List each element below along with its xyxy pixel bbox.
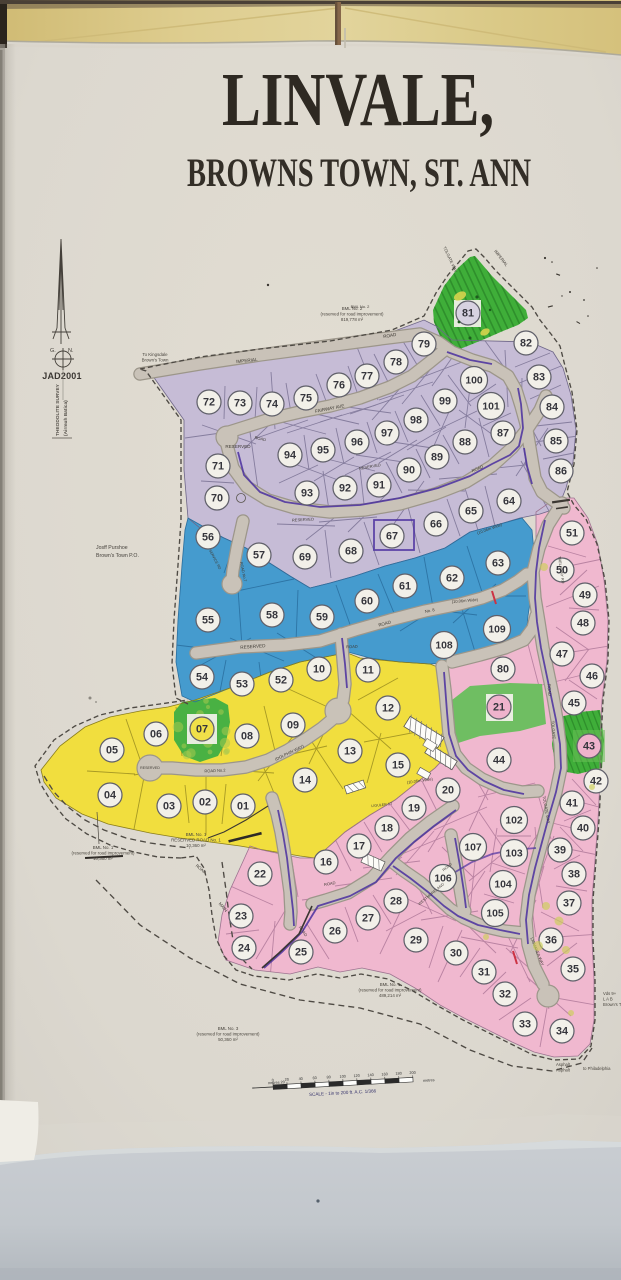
svg-text:11: 11 (362, 665, 373, 677)
svg-text:08: 08 (241, 731, 253, 743)
svg-text:100: 100 (339, 1075, 346, 1079)
svg-text:RESERVED ROAD No. 1: RESERVED ROAD No. 1 (171, 838, 221, 843)
svg-text:17: 17 (353, 841, 365, 853)
svg-text:20: 20 (442, 785, 454, 797)
svg-text:BML No. 1: BML No. 1 (93, 845, 114, 850)
svg-text:83: 83 (533, 372, 545, 384)
svg-text:49: 49 (579, 590, 591, 602)
svg-text:12: 12 (382, 703, 394, 715)
svg-text:Brown's T.: Brown's T. (603, 1002, 621, 1007)
svg-text:21: 21 (493, 702, 505, 714)
svg-text:67: 67 (386, 531, 398, 543)
svg-text:BML No. 3: BML No. 3 (218, 1026, 239, 1031)
svg-text:74: 74 (266, 399, 278, 411)
svg-text:82: 82 (520, 338, 532, 350)
svg-text:06: 06 (150, 729, 162, 741)
svg-text:THEODOLITE SURVEY: THEODOLITE SURVEY (55, 383, 61, 436)
svg-text:44: 44 (493, 755, 505, 767)
svg-text:102: 102 (505, 816, 523, 827)
svg-text:90: 90 (403, 465, 415, 477)
svg-text:48: 48 (577, 618, 589, 630)
svg-text:489,214 m²: 489,214 m² (379, 993, 402, 998)
svg-text:38: 38 (568, 869, 580, 881)
svg-text:97: 97 (381, 428, 393, 440)
svg-text:65: 65 (465, 506, 477, 518)
svg-text:13: 13 (344, 746, 356, 758)
svg-text:To Kingsdale: To Kingsdale (142, 352, 168, 357)
svg-text:77: 77 (361, 371, 373, 383)
svg-text:72: 72 (203, 397, 215, 409)
svg-text:84: 84 (546, 402, 558, 414)
svg-text:metres: metres (423, 1078, 435, 1083)
svg-text:96: 96 (351, 437, 363, 449)
svg-text:50,360 m²: 50,360 m² (218, 1037, 238, 1042)
svg-text:86: 86 (555, 466, 567, 478)
svg-text:30: 30 (450, 948, 462, 960)
svg-text:87: 87 (497, 428, 509, 440)
svg-text:60: 60 (361, 596, 373, 608)
svg-text:16: 16 (320, 857, 332, 869)
svg-text:160: 160 (381, 1072, 388, 1076)
svg-text:10,360 m²: 10,360 m² (186, 843, 206, 848)
svg-text:63: 63 (492, 558, 504, 570)
svg-text:33: 33 (519, 1019, 531, 1031)
svg-text:105: 105 (486, 909, 504, 920)
svg-text:26: 26 (329, 926, 341, 938)
svg-text:15: 15 (392, 760, 404, 772)
svg-text:100: 100 (465, 376, 483, 387)
svg-text:(reserved for road improvement: (reserved for road improvement) (359, 988, 422, 993)
svg-text:07: 07 (196, 724, 208, 736)
svg-text:28: 28 (390, 896, 402, 908)
svg-text:Asphalt: Asphalt (556, 1062, 571, 1067)
svg-text:95: 95 (317, 445, 329, 457)
svg-text:LINVALE,: LINVALE, (222, 58, 494, 142)
svg-text:23: 23 (235, 911, 247, 923)
svg-text:108: 108 (435, 641, 453, 652)
svg-text:55: 55 (202, 615, 214, 627)
svg-text:101: 101 (482, 402, 500, 413)
svg-text:27: 27 (362, 913, 374, 925)
svg-text:79: 79 (418, 339, 430, 351)
svg-text:140: 140 (367, 1073, 374, 1077)
svg-text:73: 73 (234, 398, 246, 410)
svg-text:09: 09 (287, 720, 299, 732)
svg-text:91: 91 (373, 480, 385, 492)
svg-text:N.: N. (68, 348, 74, 354)
svg-text:180: 180 (395, 1071, 402, 1075)
svg-text:JAD2001: JAD2001 (42, 371, 81, 381)
svg-text:71: 71 (212, 461, 224, 473)
svg-text:(reserved for road improvement: (reserved for road improvement) (321, 312, 384, 317)
svg-text:L A B: L A B (603, 996, 613, 1001)
svg-text:57: 57 (253, 550, 265, 562)
svg-text:85: 85 (550, 436, 562, 448)
svg-text:(Airmuh Batica): (Airmuh Batica) (63, 400, 69, 436)
svg-text:31: 31 (478, 967, 490, 979)
svg-text:ROAD: ROAD (547, 684, 553, 696)
svg-text:52: 52 (275, 675, 287, 687)
svg-text:68: 68 (345, 546, 357, 558)
svg-text:94: 94 (284, 450, 296, 462)
svg-text:BML No. 1: BML No. 1 (380, 982, 401, 987)
svg-text:46: 46 (586, 671, 598, 683)
svg-text:89: 89 (431, 452, 443, 464)
svg-text:Brown's Town: Brown's Town (142, 358, 169, 363)
svg-text:70: 70 (211, 493, 223, 505)
svg-text:18: 18 (381, 823, 393, 835)
svg-text:819,778 m²: 819,778 m² (341, 317, 364, 322)
svg-text:to Philadelphia: to Philadelphia (583, 1066, 611, 1071)
svg-text:53: 53 (236, 679, 248, 691)
svg-text:Josff Purshoe: Josff Purshoe (96, 545, 128, 551)
svg-text:RESERVED: RESERVED (140, 766, 160, 770)
svg-text:34: 34 (556, 1026, 568, 1038)
svg-text:05: 05 (106, 745, 118, 757)
svg-text:76: 76 (333, 380, 345, 392)
svg-text:01: 01 (237, 801, 249, 813)
svg-text:24: 24 (238, 943, 250, 955)
svg-text:BROWNS TOWN, ST. ANN: BROWNS TOWN, ST. ANN (187, 150, 531, 195)
svg-text:Asphalt: Asphalt (556, 1067, 571, 1072)
svg-text:43: 43 (583, 741, 595, 753)
svg-text:80: 80 (327, 1075, 331, 1079)
svg-text:22: 22 (254, 869, 266, 881)
svg-text:10,360 m²: 10,360 m² (93, 856, 113, 861)
svg-text:03: 03 (163, 801, 175, 813)
svg-text:200: 200 (409, 1071, 416, 1075)
svg-text:32: 32 (499, 989, 511, 1001)
svg-text:93: 93 (301, 488, 313, 500)
svg-text:78: 78 (390, 357, 402, 369)
svg-text:106: 106 (434, 874, 452, 885)
svg-text:41: 41 (566, 798, 578, 810)
svg-text:(reserved for road improvement: (reserved for road improvement) (72, 851, 135, 856)
svg-text:37: 37 (563, 898, 575, 910)
svg-text:ROAD: ROAD (346, 644, 358, 650)
svg-text:64: 64 (503, 496, 515, 508)
svg-text:Vds 9+: Vds 9+ (603, 991, 617, 996)
svg-text:92: 92 (339, 483, 351, 495)
svg-text:59: 59 (316, 612, 328, 624)
svg-text:35: 35 (567, 964, 579, 976)
svg-text:61: 61 (399, 581, 411, 593)
svg-text:56: 56 (202, 532, 214, 544)
svg-text:75: 75 (300, 393, 312, 405)
svg-text:20: 20 (285, 1078, 289, 1082)
svg-text:02: 02 (199, 797, 211, 809)
svg-text:88: 88 (459, 437, 471, 449)
svg-text:G.: G. (50, 348, 56, 354)
svg-text:120: 120 (353, 1074, 360, 1078)
svg-text:25: 25 (295, 947, 307, 959)
svg-text:98: 98 (410, 415, 422, 427)
svg-text:54: 54 (196, 672, 208, 684)
svg-text:(reserved for road improvement: (reserved for road improvement) (197, 1032, 260, 1037)
svg-text:69: 69 (299, 552, 311, 564)
svg-text:40: 40 (299, 1077, 303, 1081)
svg-text:47: 47 (556, 649, 568, 661)
svg-text:BML No. 2: BML No. 2 (351, 304, 371, 309)
svg-text:58: 58 (266, 610, 278, 622)
svg-text:99: 99 (439, 396, 451, 408)
svg-text:66: 66 (430, 519, 442, 531)
svg-text:103: 103 (505, 849, 523, 860)
svg-text:39: 39 (554, 845, 566, 857)
svg-text:104: 104 (494, 880, 512, 891)
svg-text:04: 04 (104, 790, 116, 802)
svg-text:109: 109 (488, 625, 506, 636)
svg-text:Brown's Town P.O.: Brown's Town P.O. (96, 553, 139, 559)
svg-text:60: 60 (313, 1076, 317, 1080)
svg-text:19: 19 (408, 803, 420, 815)
svg-text:10: 10 (313, 664, 325, 676)
svg-text:29: 29 (410, 935, 422, 947)
svg-text:14: 14 (299, 775, 311, 787)
svg-text:62: 62 (446, 573, 458, 585)
svg-text:107: 107 (464, 843, 482, 854)
svg-text:81: 81 (462, 308, 474, 320)
svg-text:80: 80 (497, 664, 509, 676)
svg-text:51: 51 (566, 528, 578, 540)
svg-text:45: 45 (568, 698, 580, 710)
svg-text:BML No. 1: BML No. 1 (186, 832, 207, 837)
svg-text:40: 40 (577, 823, 589, 835)
svg-text:36: 36 (545, 935, 557, 947)
svg-text:RESERVED: RESERVED (225, 444, 251, 449)
